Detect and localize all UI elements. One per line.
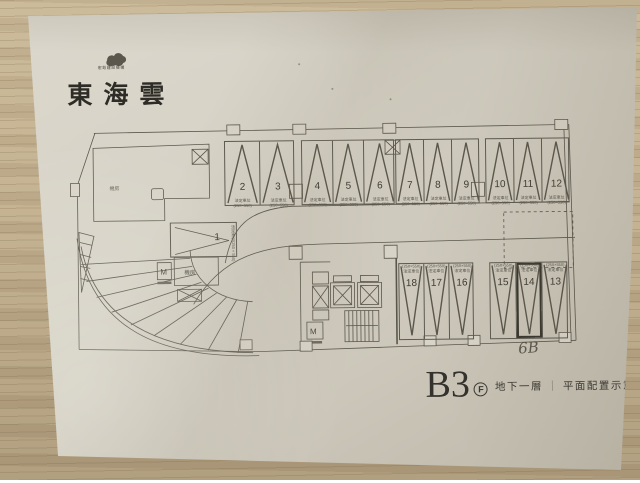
caption-separator: ｜ [543, 381, 563, 393]
dashed-clearance-zone [504, 211, 574, 268]
parking-stall-11: 11法定車位(250×550) [514, 139, 543, 202]
stall-number: 18 [399, 278, 423, 289]
stall-number: 6 [364, 180, 395, 191]
parking-stall-1: 1 法定車位(250×550) [170, 222, 237, 258]
parking-stall-group: 7法定車位(250×550)8法定車位(250×550)9法定車位(250×55… [395, 138, 480, 204]
photo-stage: 宏銓建設機構 東海雲 [0, 0, 640, 480]
stall-note: 法定車位(250×550) [429, 196, 447, 206]
stall-number: 13 [542, 276, 568, 287]
elevator-label-ramp: M [160, 268, 167, 277]
parking-stall-group: 18(250×550)法定車位17(250×550)法定車位16(250×550… [398, 262, 474, 340]
mechanical-room-outline [93, 144, 210, 221]
parking-stall-4: 4法定車位(250×550) [302, 141, 334, 204]
floor-badge: F [474, 382, 488, 396]
stall-number: 4 [302, 181, 332, 192]
stall-note: (250×550)法定車位 [427, 264, 445, 274]
floor-label: 地下一層 [495, 381, 543, 394]
parking-stall-16: 16(250×550)法定車位 [449, 263, 475, 338]
parking-stall-15: 15(250×550)法定車位 [490, 263, 517, 338]
machine-room-label: 機房 [184, 268, 196, 276]
stall-number: 17 [424, 278, 448, 289]
stall-number: 11 [514, 179, 541, 190]
left-stair-hatch [79, 232, 95, 292]
parking-stall-17: 17(250×550)法定車位 [424, 264, 450, 339]
stall-number: 15 [490, 277, 515, 288]
dust-speck [298, 63, 300, 65]
stall-note: (250×550)法定車位 [402, 264, 420, 274]
title-block: B3 F 地下一層｜平面配置示意圖 [425, 366, 640, 403]
parking-stall-5: 5法定車位(250×550) [333, 141, 365, 204]
parking-stall-7: 7法定車位(250×550) [396, 140, 425, 203]
stall-note: (250×550)法定車位 [546, 262, 564, 272]
stall-note: 法定車位(250×550) [519, 195, 537, 205]
stall-note: 法定車位(250×550) [308, 197, 326, 207]
stall-1-number: 1 [214, 232, 220, 243]
parking-stall-9: 9法定車位(250×550) [452, 139, 481, 202]
stall-note: 法定車位(250×550) [547, 195, 565, 205]
stall-1-note: 法定車位(250×550) [230, 225, 236, 240]
parking-stall-10: 10法定車位(250×550) [486, 139, 515, 202]
plan-linework: M M 機房 機房 [0, 0, 640, 483]
parking-stall-12: 12法定車位(250×550) [542, 138, 571, 201]
stall-number: 16 [449, 277, 474, 288]
stall-note: 法定車位(250×550) [339, 197, 357, 207]
dust-speck [390, 98, 392, 100]
stall-note: 法定車位(250×550) [233, 198, 251, 208]
stall-note: 法定車位(250×550) [491, 195, 509, 205]
stall-number: 14 [516, 277, 541, 288]
stall-number: 3 [260, 181, 295, 192]
stall-number: 10 [486, 179, 513, 190]
stall-number: 2 [225, 182, 259, 193]
room-label-small: 機房 [109, 185, 119, 192]
sheet-content: 宏銓建設機構 東海雲 [0, 0, 640, 483]
level-code: B3 [425, 367, 470, 402]
stall-1-wedge [171, 223, 238, 259]
parking-stall-group: 2法定車位(250×550)3法定車位(250×550) [224, 140, 295, 206]
dust-speck [331, 88, 333, 90]
drawing-caption: 地下一層｜平面配置示意圖 [495, 378, 640, 395]
stall-note: 法定車位(250×550) [371, 197, 389, 207]
stall-note: 法定車位(250×550) [401, 196, 419, 206]
stall-note: (250×550)法定車位 [494, 263, 512, 273]
elevator-label-core: M [310, 327, 317, 336]
parking-stall-3: 3法定車位(250×550) [260, 141, 296, 204]
stall-note: (250×550)法定車位 [453, 263, 471, 273]
stall-number: 8 [424, 180, 451, 191]
parking-stall-8: 8法定車位(250×550) [424, 140, 453, 203]
stall-number: 9 [452, 179, 480, 190]
parking-stall-6: 6法定車位(250×550) [364, 140, 396, 203]
parking-stall-group: 15(250×550)法定車位14(250×550)法定車位13(250×550… [489, 261, 568, 339]
stall-number: 7 [396, 180, 423, 191]
stall-note: 法定車位(250×550) [269, 198, 287, 208]
parking-stall-2: 2法定車位(250×550) [225, 142, 261, 205]
handwritten-note: 6B [517, 338, 539, 358]
stall-note: (250×550)法定車位 [520, 263, 538, 273]
parking-stall-group: 4法定車位(250×550)5法定車位(250×550)6法定車位(250×55… [301, 139, 395, 205]
stall-note: 法定車位(250×550) [457, 196, 475, 206]
parking-stall-18: 18(250×550)法定車位 [399, 264, 425, 339]
parking-stall-group: 10法定車位(250×550)11法定車位(250×550)12法定車位(250… [485, 137, 570, 203]
floor-plan-sheet: 宏銓建設機構 東海雲 [0, 0, 640, 480]
stall-number: 12 [542, 178, 570, 189]
ramp-side-rooms [157, 257, 218, 302]
parking-stall-14: 14(250×550)法定車位 [516, 263, 543, 338]
stall-number: 5 [333, 181, 363, 192]
parking-stall-13: 13(250×550)法定車位 [542, 262, 569, 337]
